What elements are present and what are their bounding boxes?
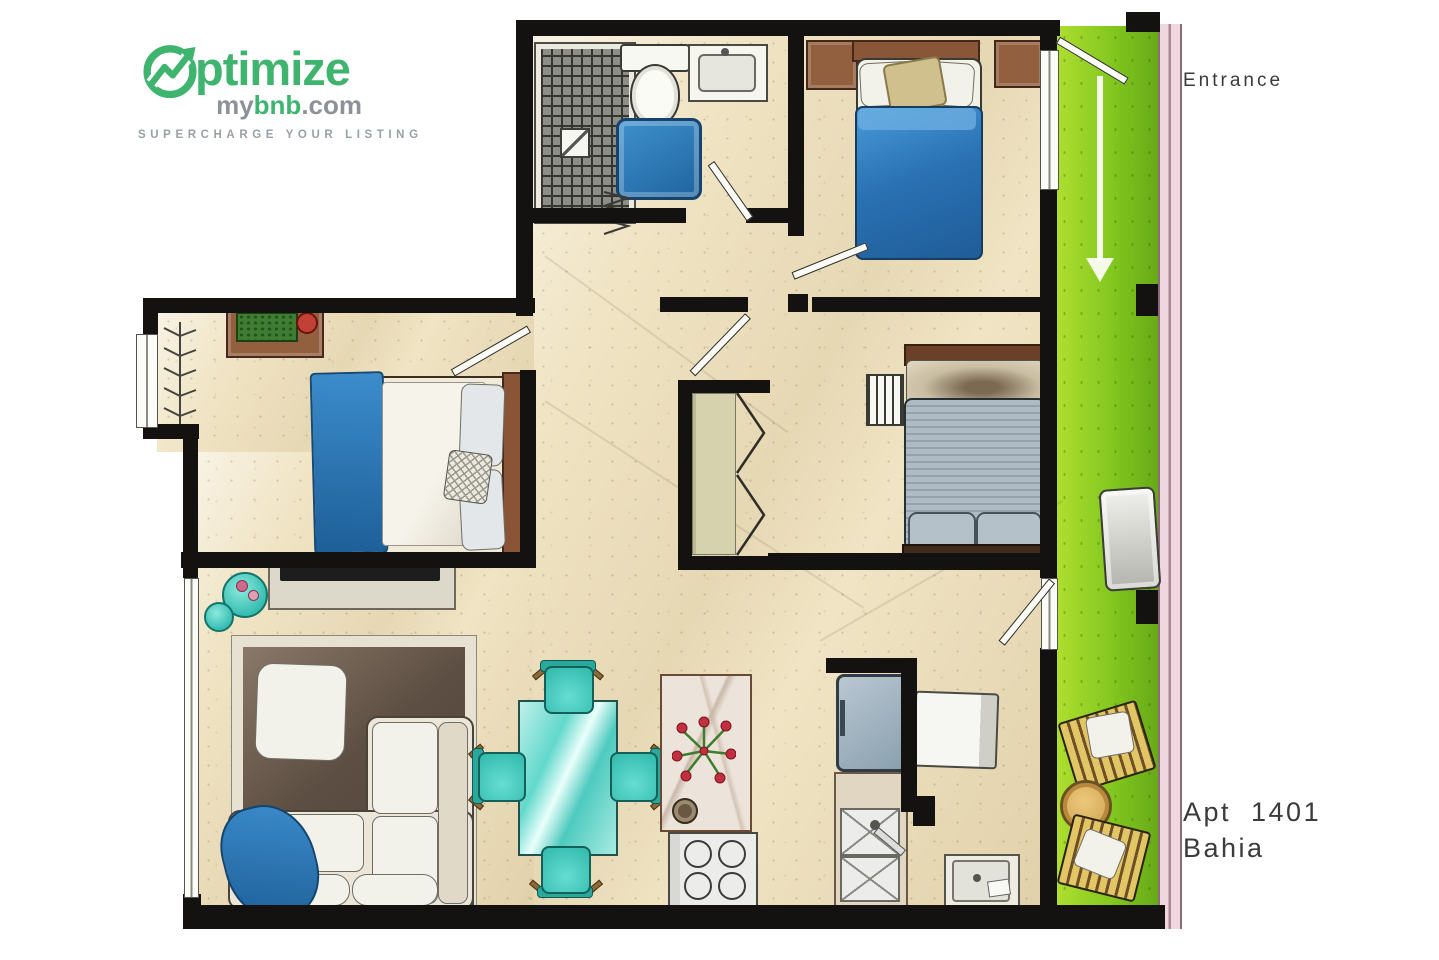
window-master-west [136,334,158,428]
logo-growth-arrow-icon [138,36,202,100]
wall-kitchen-stub [913,796,935,826]
wall-east [1040,648,1057,908]
dining-chair [544,666,594,714]
soap-dish [987,879,1011,898]
wall-railing-stub [1126,12,1160,32]
closet-bifold-doors-icon [734,391,770,557]
cooktop-stove [668,832,758,908]
lounge-pillow [1085,710,1136,759]
stove-burner [684,872,712,900]
closet-interior [692,393,736,555]
wall-bathroom-west [516,20,533,316]
entrance-label: Entrance [1183,70,1283,92]
wall-railing-stub [1136,284,1158,316]
towel-ladder [866,374,904,426]
toilet-bowl [630,64,680,126]
logo-text-com: .com [301,90,362,120]
entrance-arrow-shaft-icon [1097,76,1103,262]
dining-chair [541,846,591,894]
washer [913,691,1000,770]
balcony-railing [1158,24,1182,929]
flower-decor [236,580,248,592]
floor-cushion [254,662,347,761]
kitchen-sink [840,808,900,856]
bowl [672,798,698,824]
wall-east [1040,20,1057,50]
faucet-base [870,820,880,830]
wall-east [1040,188,1057,578]
fridge [836,674,908,772]
stove-burner [684,840,712,868]
bed-blanket-blue [310,371,389,555]
wall-closet-west [678,380,692,570]
sofa-backrest [438,722,468,904]
flower-decor [248,590,259,601]
entrance-arrow-head-icon [1086,258,1114,282]
wall-bottom [183,905,1165,929]
apartment-label: Apt 1401 Bahia [1183,794,1321,867]
sink-faucet [721,48,729,56]
dining-table-glass [518,700,618,856]
logo-text-my: my [216,90,254,120]
sink-drain [973,874,981,882]
wall-master-east [520,370,536,556]
dining-chair [610,752,658,802]
wall-bedroom2-north [812,297,1056,312]
wall-bedroom2-south [768,553,1056,570]
shower-drain [560,128,590,158]
round-side-table-small [204,602,234,632]
nightstand [806,40,858,90]
logo-tagline: SUPERCHARGE YOUR LISTING [138,129,364,141]
wall-bedroom3-west [788,20,804,236]
accent-pillow [443,449,494,505]
wall-railing-stub [1136,590,1158,624]
wall-corner [788,294,808,312]
logo-text-optimize: ptimize [195,41,350,96]
window-bedroom3-east [1040,50,1059,190]
wall-master-south [181,552,536,568]
logo-text-bnb: bnb [254,90,302,120]
sofa-back-pillow [352,874,438,906]
stove-burner [718,872,746,900]
stove-burner [718,840,746,868]
wall-closet-south [678,556,770,570]
window-living-west [184,578,199,898]
nightstand [994,40,1044,88]
plant-box [236,312,298,342]
wall-master-north [143,298,535,313]
tulip-bouquet-icon [672,716,736,786]
fridge-handle [840,700,845,736]
duvet-fold [858,108,976,130]
wall-kitchen-nook [901,658,917,812]
dining-chair [478,752,526,802]
wall-master-west [143,298,158,336]
vanity-sink [698,54,756,92]
brand-logo: ptimize mybnb.com SUPERCHARGE YOUR LISTI… [138,36,364,141]
wall-bathroom-south [516,208,686,223]
balcony-bench-unit [1099,486,1162,592]
apartment-number: Apt 1401 [1183,794,1321,830]
wall-closet-north [678,380,770,393]
coat-rack-icon [156,320,200,432]
wall-hall-divider [660,297,748,312]
alarm-clock [296,312,318,334]
wall-kitchen-nook [826,658,917,673]
floor-plan-canvas: ptimize mybnb.com SUPERCHARGE YOUR LISTI… [0,0,1439,960]
apartment-name: Bahia [1183,830,1321,866]
kitchen-sink [840,856,900,902]
sofa-cushion [372,722,438,814]
